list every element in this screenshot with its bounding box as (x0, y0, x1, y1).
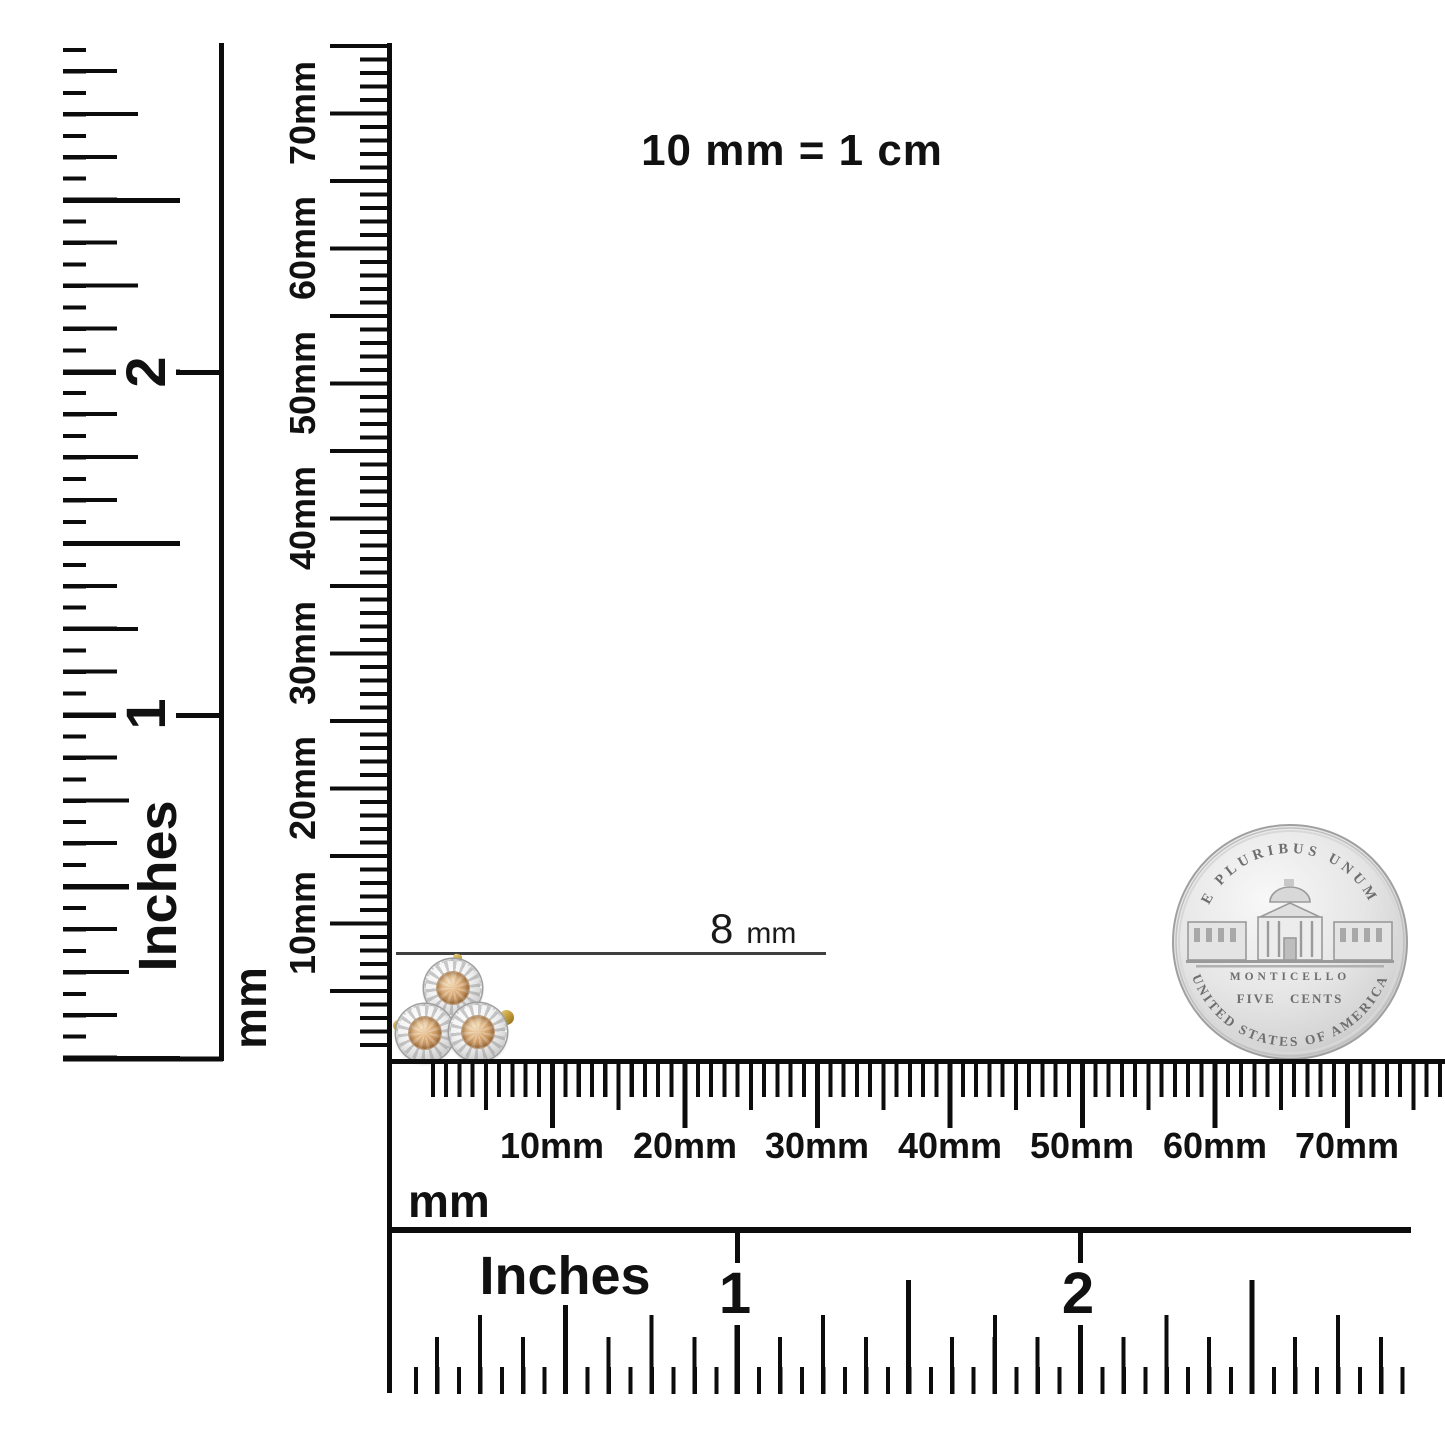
horizontal-mm-label-10: 10mm (500, 1128, 604, 1164)
horizontal-mm-label-50: 50mm (1030, 1128, 1134, 1164)
scale-note-text: 10 mm = 1 cm (641, 126, 943, 176)
horizontal-inches-unit-label: Inches (473, 1247, 656, 1305)
horizontal-mm-label-40: 40mm (898, 1128, 1002, 1164)
vertical-mm-label-40: 40mm (285, 466, 321, 570)
earring-setting-bottom-left (396, 1004, 454, 1062)
horizontal-inch-numeral-2: 2 (1054, 1263, 1102, 1325)
vertical-mm-label-60: 60mm (285, 196, 321, 300)
building-base-step-2 (1196, 965, 1384, 968)
vertical-mm-label-50: 50mm (285, 331, 321, 435)
horizontal-mm-ruler-ticks (393, 1064, 1445, 1130)
vertical-mm-label-20: 20mm (285, 736, 321, 840)
horizontal-mm-label-20: 20mm (633, 1128, 737, 1164)
measurement-unit: mm (746, 919, 796, 949)
building-cupola (1284, 879, 1294, 886)
horizontal-mm-label-60: 60mm (1163, 1128, 1267, 1164)
nickel-coin: E PLURIBUS UNUM MONTICELLO FIVE CENTS UN… (1170, 822, 1410, 1062)
earring-product-photo (395, 952, 521, 1064)
vertical-mm-label-10: 10mm (285, 871, 321, 975)
building-base-step (1186, 960, 1394, 963)
vertical-mm-label-30: 30mm (285, 601, 321, 705)
earring-setting-bottom-right (449, 1003, 507, 1061)
vertical-inch-numeral-2: 2 (116, 346, 176, 397)
horizontal-mm-unit-label: mm (408, 1178, 490, 1224)
vertical-inches-unit-label: Inches (129, 794, 187, 977)
vertical-mm-ruler-ticks (328, 43, 390, 1063)
coin-building-label: MONTICELLO (1230, 971, 1351, 983)
earring-stone-bottom-left (409, 1017, 441, 1049)
vertical-mm-label-70: 70mm (285, 61, 321, 165)
earring-stone-bottom-right (462, 1016, 494, 1048)
horizontal-inch-numeral-1: 1 (711, 1263, 759, 1325)
measurement-label: 8 mm (710, 908, 796, 950)
size-guide-image: 10 mm = 1 cm 1 2 Inches 10mm 20mm 30mm 4… (0, 0, 1445, 1445)
horizontal-mm-label-70: 70mm (1295, 1128, 1399, 1164)
vertical-inch-numeral-1: 1 (116, 688, 176, 739)
measurement-value: 8 (710, 908, 733, 950)
vertical-mm-unit-label: mm (227, 967, 273, 1049)
earring-stone-top (437, 972, 469, 1004)
coin-denomination-text: FIVE CENTS (1237, 991, 1344, 1006)
horizontal-mm-label-30: 30mm (765, 1128, 869, 1164)
building-door (1284, 938, 1296, 960)
